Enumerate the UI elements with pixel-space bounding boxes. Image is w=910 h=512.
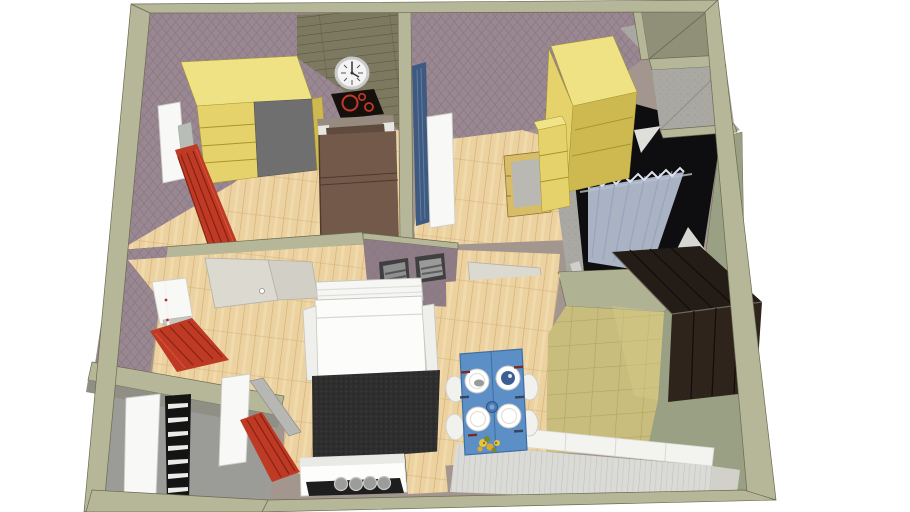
wardrobe-gray-cabinet (254, 99, 317, 177)
sofa-bed (303, 278, 438, 381)
tv-stand-wood-side (405, 451, 448, 494)
ladder (165, 394, 191, 506)
tv-stand (300, 451, 448, 496)
wall-clock (336, 58, 368, 88)
room-bedroom-1 (112, 9, 402, 252)
double-bed (317, 115, 399, 246)
floorplan-viewport[interactable]: Top-down perspective 3D rendering of a o… (0, 0, 910, 512)
bed-duvet (319, 131, 399, 246)
partition-bedrooms-band (398, 9, 413, 243)
door-handle (260, 289, 265, 294)
bedroom2-door (427, 113, 455, 228)
floorplan-render (0, 0, 910, 512)
balcony-door-leaf (124, 394, 160, 500)
